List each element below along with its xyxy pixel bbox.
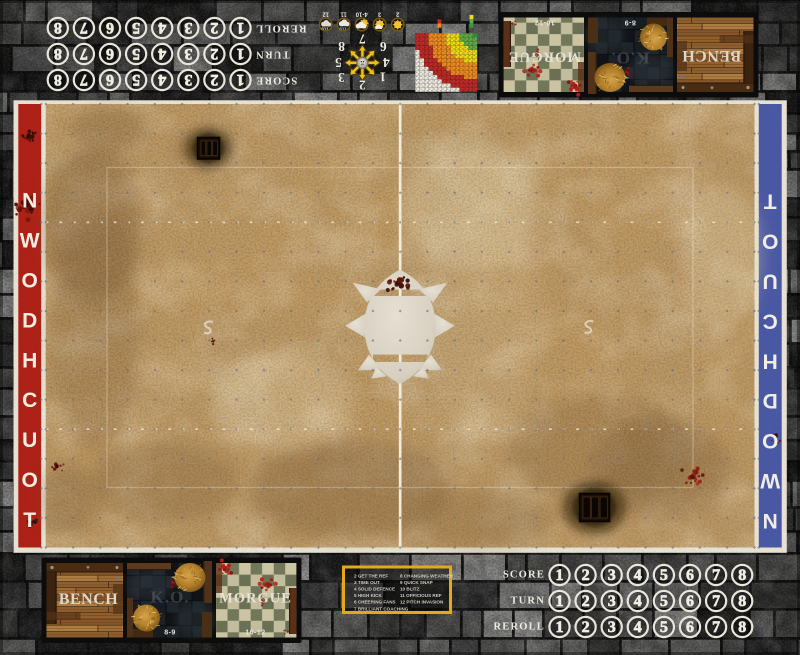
- svg-text:4: 4: [158, 19, 166, 36]
- svg-text:7: 7: [712, 593, 720, 610]
- svg-text:1: 1: [237, 45, 245, 62]
- svg-text:8: 8: [54, 71, 62, 88]
- svg-text:7: 7: [80, 71, 88, 88]
- svg-text:12 PITCH INVASION: 12 PITCH INVASION: [400, 600, 444, 605]
- svg-text:D: D: [22, 309, 37, 332]
- svg-text:1: 1: [237, 19, 245, 36]
- svg-text:11: 11: [340, 11, 347, 17]
- svg-text:6: 6: [380, 39, 387, 54]
- svg-text:1: 1: [556, 593, 564, 610]
- svg-text:T: T: [764, 190, 777, 213]
- svg-text:4: 4: [158, 45, 166, 62]
- svg-text:2: 2: [210, 71, 218, 88]
- svg-text:H: H: [763, 349, 778, 372]
- svg-text:SCORE: SCORE: [503, 570, 545, 581]
- svg-text:BENCH: BENCH: [59, 591, 118, 608]
- svg-text:6: 6: [106, 71, 114, 88]
- svg-text:1: 1: [556, 619, 564, 636]
- svg-text:5: 5: [132, 71, 140, 88]
- svg-text:O: O: [22, 269, 38, 292]
- svg-text:BENCH: BENCH: [682, 47, 741, 64]
- svg-text:TURN: TURN: [255, 49, 290, 60]
- svg-text:1: 1: [237, 71, 245, 88]
- svg-text:8: 8: [738, 619, 746, 636]
- svg-text:12: 12: [322, 11, 329, 17]
- svg-text:3: 3: [608, 593, 616, 610]
- svg-text:7: 7: [712, 619, 720, 636]
- svg-text:8-9: 8-9: [164, 630, 176, 637]
- svg-text:6: 6: [106, 45, 114, 62]
- svg-text:N: N: [22, 190, 37, 213]
- svg-text:K.O.: K.O.: [611, 49, 650, 68]
- svg-text:U: U: [763, 269, 778, 292]
- svg-text:2 GET THE REF: 2 GET THE REF: [354, 573, 388, 578]
- svg-text:6: 6: [106, 19, 114, 36]
- svg-text:5 HIGH KICK: 5 HIGH KICK: [354, 593, 383, 598]
- svg-text:10 BLITZ: 10 BLITZ: [400, 587, 420, 592]
- svg-text:H: H: [22, 349, 37, 372]
- svg-text:8: 8: [338, 39, 345, 54]
- svg-text:9 QUICK SNAP: 9 QUICK SNAP: [400, 580, 433, 585]
- svg-text:3: 3: [338, 70, 345, 85]
- svg-text:3: 3: [608, 619, 616, 636]
- svg-text:2: 2: [582, 567, 590, 584]
- svg-text:U: U: [22, 429, 37, 452]
- svg-text:10-12: 10-12: [534, 19, 554, 26]
- svg-text:5: 5: [660, 593, 668, 610]
- svg-text:4: 4: [634, 619, 642, 636]
- svg-text:5: 5: [132, 19, 140, 36]
- svg-text:O: O: [762, 429, 778, 452]
- svg-text:2: 2: [582, 619, 590, 636]
- svg-text:4: 4: [383, 55, 390, 70]
- svg-text:1: 1: [379, 70, 386, 85]
- svg-text:C: C: [22, 389, 37, 412]
- svg-text:6: 6: [686, 619, 694, 636]
- svg-text:4 SOLID DEFENCE: 4 SOLID DEFENCE: [354, 587, 395, 592]
- svg-text:O: O: [762, 229, 778, 252]
- svg-text:5: 5: [660, 619, 668, 636]
- svg-text:C: C: [763, 309, 778, 332]
- svg-text:10-12: 10-12: [245, 630, 265, 637]
- svg-text:7 BRILLIANT COACHING: 7 BRILLIANT COACHING: [354, 606, 409, 611]
- svg-text:2: 2: [210, 19, 218, 36]
- svg-text:W: W: [760, 469, 780, 492]
- svg-text:4: 4: [634, 567, 642, 584]
- svg-text:SCORE: SCORE: [255, 75, 297, 86]
- svg-text:8: 8: [738, 567, 746, 584]
- svg-text:TURN: TURN: [510, 596, 545, 607]
- svg-text:REROLL: REROLL: [255, 23, 307, 34]
- svg-text:8: 8: [738, 593, 746, 610]
- svg-text:8: 8: [54, 45, 62, 62]
- svg-text:W: W: [20, 229, 40, 252]
- svg-text:4: 4: [634, 593, 642, 610]
- svg-text:3: 3: [184, 71, 192, 88]
- svg-text:8-9: 8-9: [624, 19, 636, 26]
- svg-text:7: 7: [359, 32, 366, 47]
- svg-text:6 CHEERING FANS: 6 CHEERING FANS: [354, 600, 396, 605]
- svg-text:3: 3: [608, 567, 616, 584]
- svg-text:3: 3: [184, 45, 192, 62]
- svg-text:5: 5: [660, 567, 668, 584]
- svg-text:1: 1: [556, 567, 564, 584]
- svg-text:3: 3: [184, 19, 192, 36]
- svg-text:11 OFFICIOUS REF: 11 OFFICIOUS REF: [400, 593, 442, 598]
- svg-text:3 TIME OUT: 3 TIME OUT: [354, 580, 380, 585]
- svg-text:2: 2: [359, 78, 366, 93]
- svg-text:2: 2: [210, 45, 218, 62]
- svg-text:T: T: [23, 509, 36, 532]
- svg-text:D: D: [763, 389, 778, 412]
- svg-text:8: 8: [54, 19, 62, 36]
- svg-text:REROLL: REROLL: [493, 622, 545, 633]
- svg-text:8 CHANGING WEATHER: 8 CHANGING WEATHER: [400, 573, 454, 578]
- svg-text:N: N: [763, 509, 778, 532]
- svg-text:5: 5: [132, 45, 140, 62]
- svg-text:MORGUE: MORGUE: [219, 591, 292, 607]
- svg-text:7: 7: [80, 19, 88, 36]
- svg-text:4: 4: [158, 71, 166, 88]
- svg-text:MORGUE: MORGUE: [508, 49, 581, 65]
- svg-text:2: 2: [582, 593, 590, 610]
- svg-text:O: O: [22, 469, 38, 492]
- svg-text:5: 5: [335, 55, 342, 70]
- svg-text:7: 7: [80, 45, 88, 62]
- svg-text:7: 7: [712, 567, 720, 584]
- svg-text:6: 6: [686, 593, 694, 610]
- svg-text:4-10: 4-10: [355, 11, 368, 17]
- svg-text:K.O.: K.O.: [151, 588, 190, 607]
- svg-text:6: 6: [686, 567, 694, 584]
